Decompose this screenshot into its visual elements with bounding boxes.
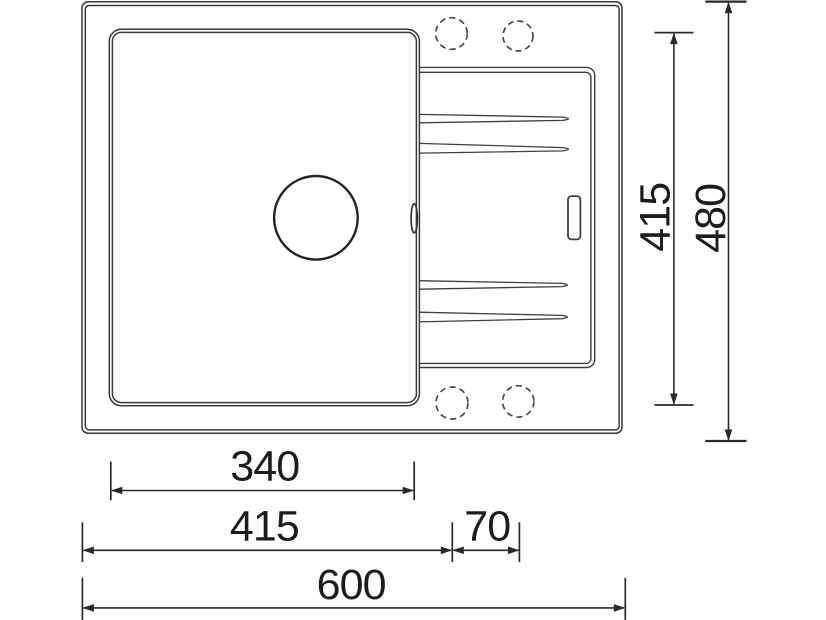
svg-text:600: 600 [317,561,386,609]
svg-text:415: 415 [230,502,299,550]
svg-text:70: 70 [464,502,510,550]
svg-text:340: 340 [230,443,299,491]
svg-text:415: 415 [632,183,680,252]
svg-text:480: 480 [687,184,735,253]
